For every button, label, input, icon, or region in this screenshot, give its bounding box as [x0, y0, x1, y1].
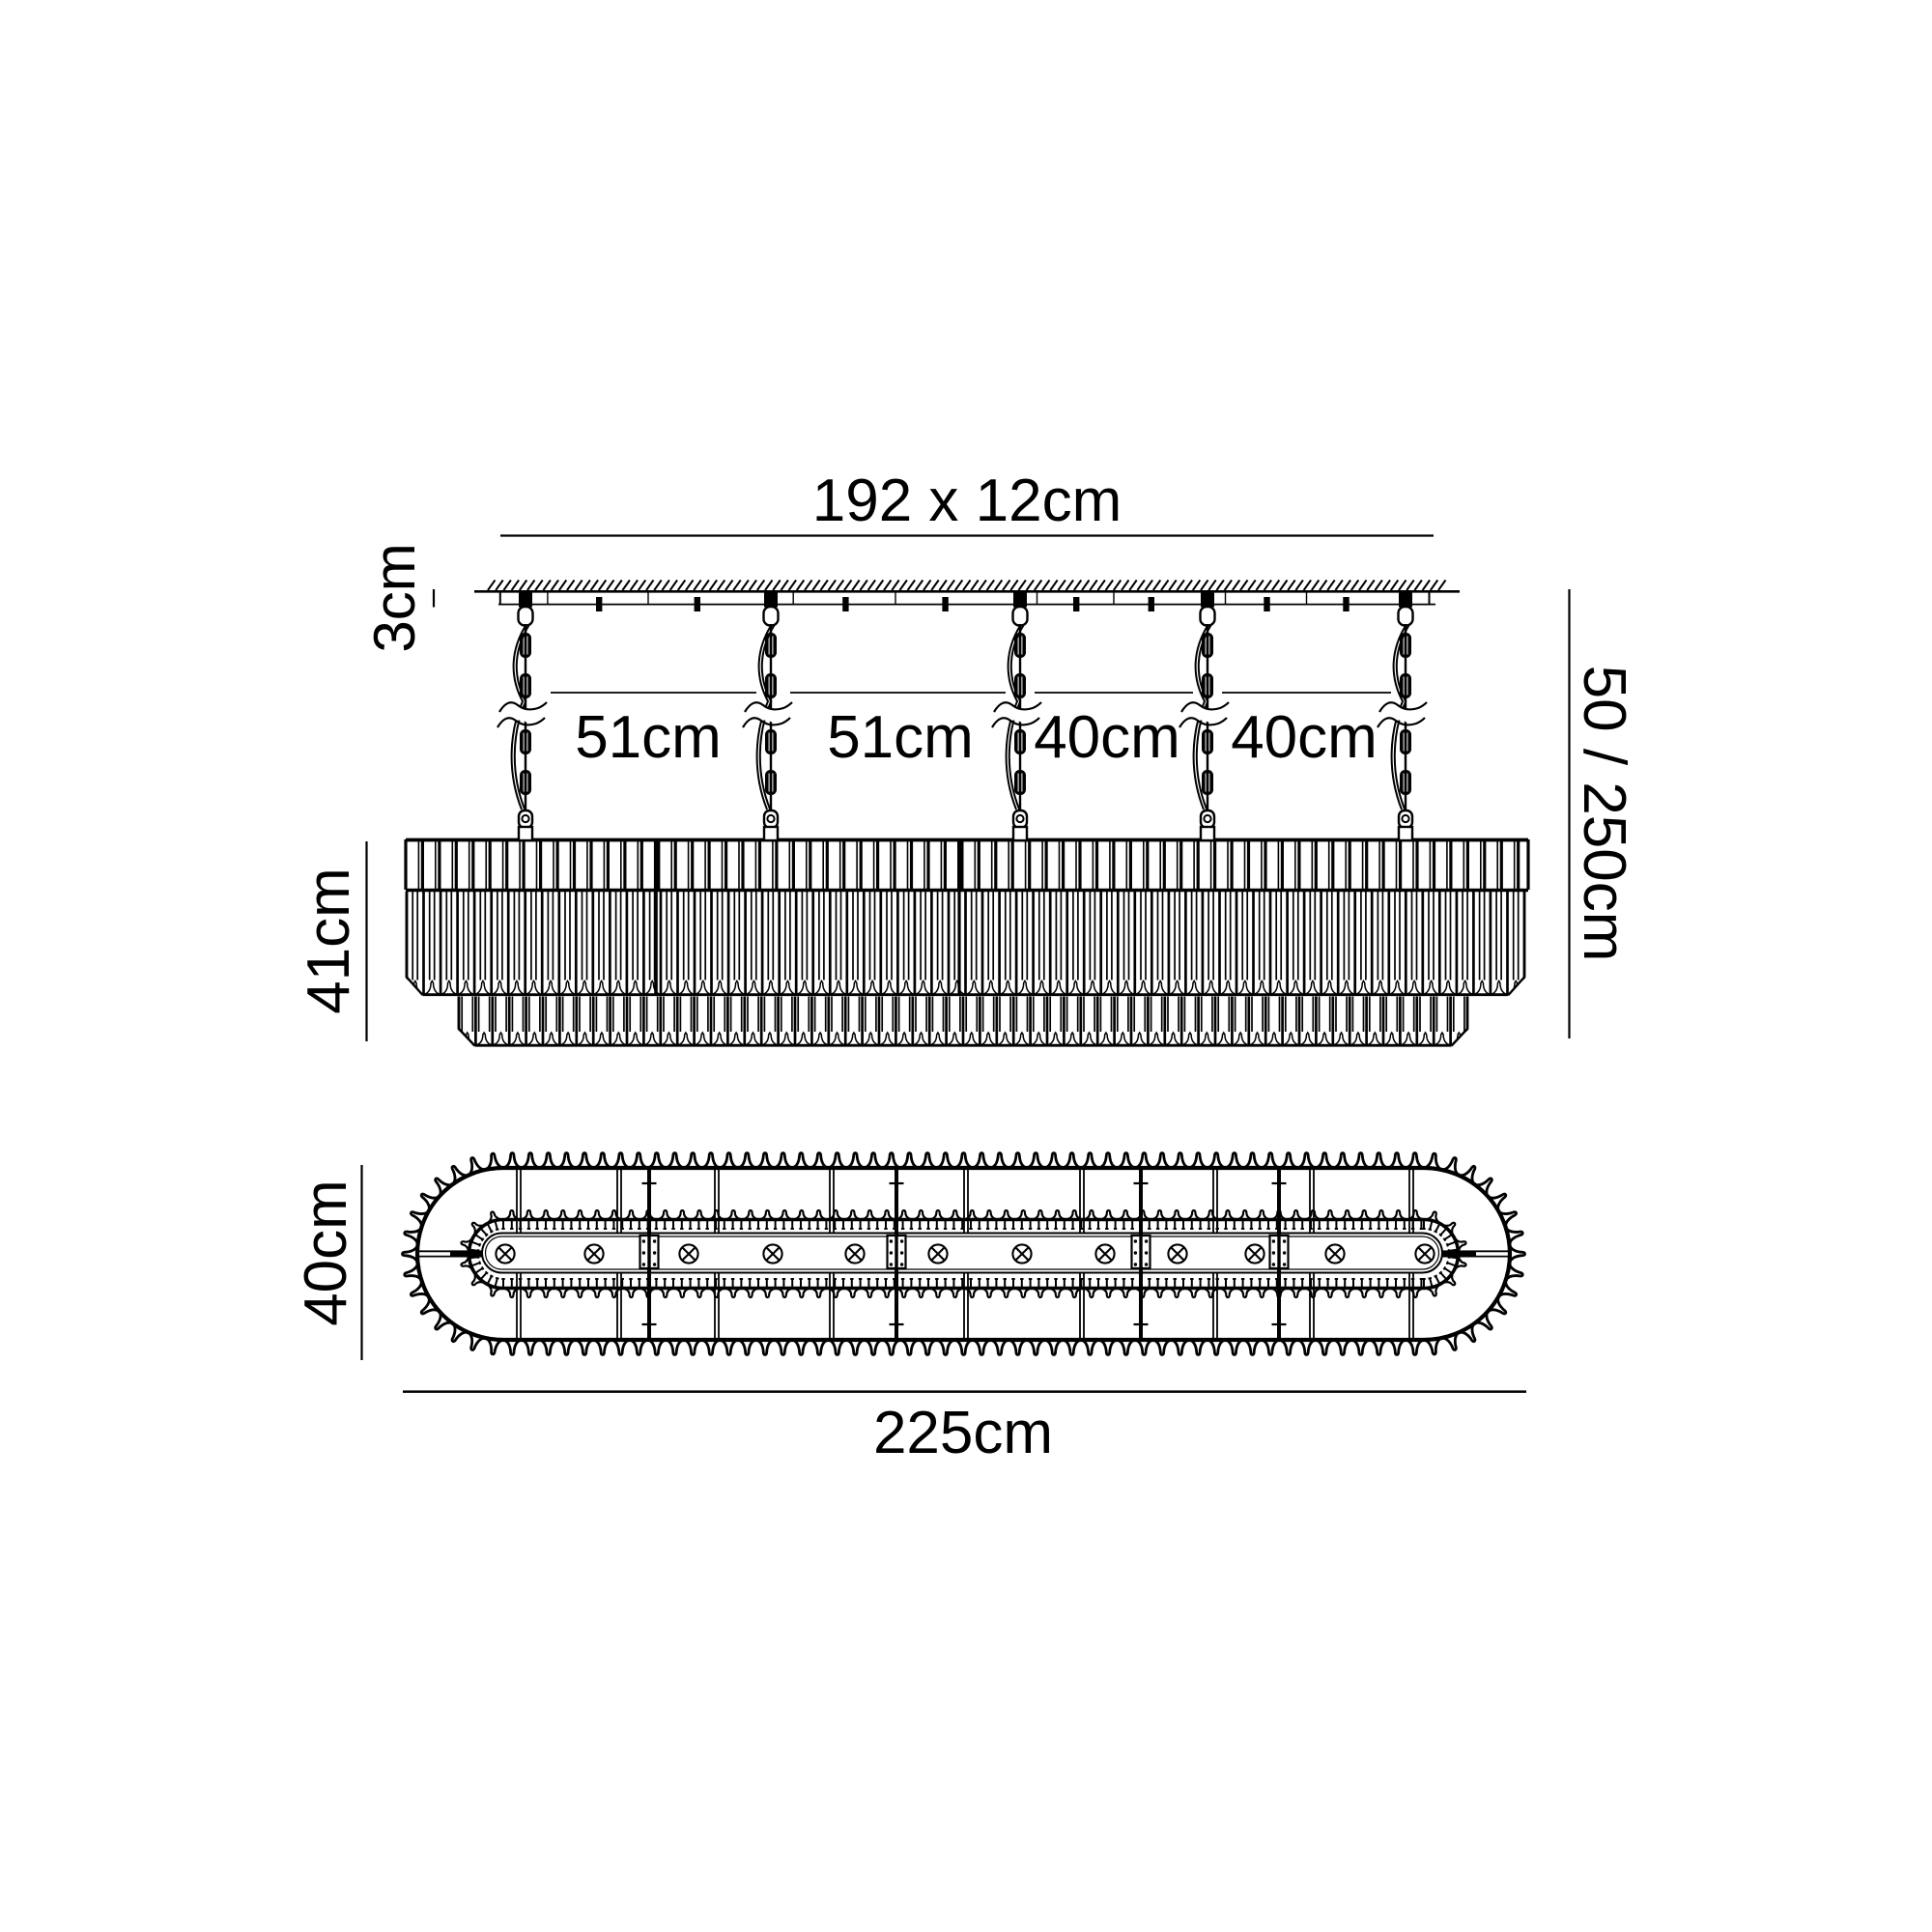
svg-text:41cm: 41cm	[296, 867, 362, 1014]
svg-text:51cm: 51cm	[827, 704, 974, 771]
svg-text:192 x 12cm: 192 x 12cm	[812, 468, 1122, 534]
svg-text:40cm: 40cm	[1034, 704, 1180, 771]
svg-text:40cm: 40cm	[293, 1179, 359, 1326]
svg-text:3cm: 3cm	[362, 543, 427, 652]
svg-text:50 / 250cm: 50 / 250cm	[1571, 666, 1637, 962]
svg-text:225cm: 225cm	[873, 1400, 1053, 1466]
svg-text:40cm: 40cm	[1231, 704, 1378, 771]
svg-text:51cm: 51cm	[575, 704, 722, 771]
